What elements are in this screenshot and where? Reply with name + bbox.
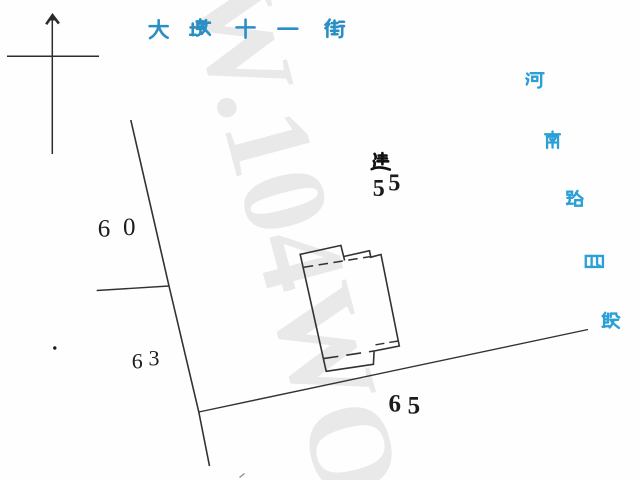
svg-text:6: 6 (132, 348, 143, 373)
svg-text:3: 3 (149, 345, 160, 370)
svg-text:6: 6 (389, 390, 402, 417)
svg-text:0: 0 (123, 214, 136, 241)
svg-text:5: 5 (373, 176, 385, 202)
svg-text:5: 5 (408, 392, 421, 419)
svg-text:5: 5 (388, 171, 400, 197)
svg-text:6: 6 (98, 216, 111, 243)
